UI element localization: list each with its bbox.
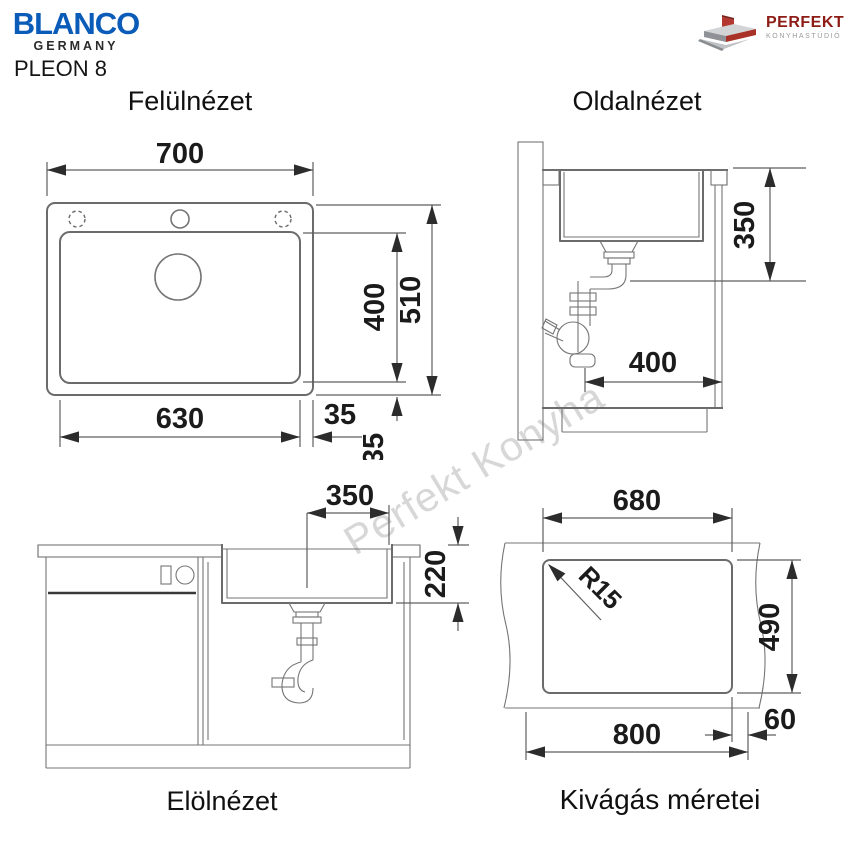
countertop: [38, 545, 420, 557]
dishwasher-control-button: [161, 566, 171, 584]
top-view-dimensions: 700 400 510 35 630 35: [47, 138, 441, 460]
wall-section: [518, 142, 543, 440]
front-view-dimensions: 350 220: [307, 480, 469, 631]
side-view-title: Oldalnézet: [487, 86, 787, 117]
kitchen-counter-icon: [698, 14, 762, 52]
siphon-front: [272, 603, 325, 703]
dim-bowl-height-400: 400: [359, 283, 391, 331]
technical-drawing-page: BLANCO GERMANY PLEON 8 PERFEKT KONYHASTÚ…: [0, 0, 850, 850]
side-view-dimensions: 350 400: [585, 168, 806, 392]
dim-edge-right-35: 35: [324, 399, 356, 431]
dim-drain-offset-400: 400: [629, 347, 677, 379]
dim-width-700: 700: [156, 138, 204, 170]
dim-cutout-width-680: 680: [613, 485, 661, 517]
base-cabinets: [46, 557, 410, 768]
dim-corner-radius-r15: R15: [573, 560, 628, 615]
dim-cutout-height-490: 490: [754, 603, 786, 651]
dim-edge-60: 60: [764, 704, 796, 736]
drain-hole: [155, 254, 201, 300]
dim-center-to-edge-350: 350: [326, 480, 374, 512]
cutout-view-drawing: 680 R15 490 800 60: [480, 470, 850, 820]
worktop-panel: [501, 543, 765, 708]
cutout-dimensions: 680 R15 490 800 60: [526, 485, 801, 760]
dim-depth-350: 350: [729, 201, 761, 249]
product-model-label: PLEON 8: [14, 56, 107, 82]
dim-edge-bottom-35: 35: [358, 433, 390, 460]
top-view-title: Felülnézet: [40, 86, 340, 117]
drain-siphon: [542, 241, 638, 367]
sink-bowl-section: [560, 172, 703, 241]
top-view-drawing: 700 400 510 35 630 35: [0, 130, 460, 460]
tap-hole-center: [171, 210, 189, 228]
dim-depth-220: 220: [420, 550, 452, 598]
tap-hole-right: [275, 211, 291, 227]
front-view-drawing: 350 220: [20, 470, 480, 820]
tap-hole-left: [69, 211, 85, 227]
blanco-germany-label: GERMANY: [10, 39, 142, 53]
konyhastudio-label: KONYHASTÚDIÓ: [766, 33, 844, 40]
sink-outline: [47, 203, 313, 395]
dim-height-510: 510: [395, 276, 427, 324]
cutout-rectangle: [543, 560, 732, 693]
side-view-drawing: 350 400: [495, 130, 850, 460]
dim-bowl-width-630: 630: [156, 403, 204, 435]
blanco-logo: BLANCO: [10, 8, 142, 39]
perfekt-wordmark: PERFEKT: [766, 14, 844, 32]
dishwasher-control-dial: [176, 566, 194, 584]
perfekt-logo: PERFEKT KONYHASTÚDIÓ: [698, 14, 844, 52]
dim-total-width-800: 800: [613, 719, 661, 751]
